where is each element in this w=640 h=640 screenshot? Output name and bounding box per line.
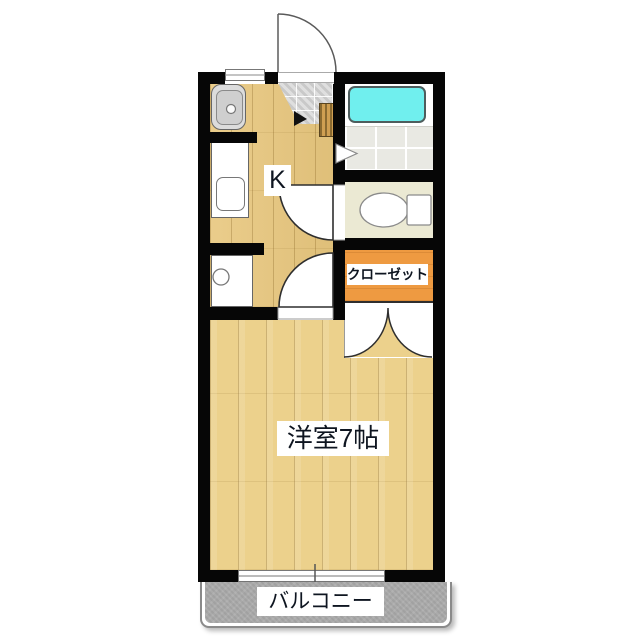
wall-stub-sink xyxy=(210,132,257,143)
stove-space xyxy=(216,177,245,211)
wall-left xyxy=(198,72,210,582)
entrance-door xyxy=(278,14,336,72)
floor-plan: K クローゼット 洋室7帖 バルコニー xyxy=(0,0,640,640)
counter-unit xyxy=(211,142,249,218)
wall-stub-washer xyxy=(210,243,264,255)
kitchen-sink xyxy=(211,84,246,130)
wall-kitchen-closet-lower xyxy=(333,240,345,320)
western-room-label: 洋室7帖 xyxy=(277,421,389,456)
wall-bottom-left xyxy=(198,570,238,582)
wall-top-right xyxy=(334,72,445,84)
wall-top-mid xyxy=(265,72,278,84)
wall-bottom-right xyxy=(385,570,445,582)
bathroom-tile-floor xyxy=(345,126,433,170)
toilet-room xyxy=(345,182,433,238)
balcony-label: バルコニー xyxy=(257,587,384,616)
balcony-window xyxy=(238,570,385,582)
wall-right xyxy=(433,72,445,582)
sink-basin xyxy=(216,90,243,125)
closet-label: クローゼット xyxy=(347,264,428,285)
wall-kitchen-room xyxy=(198,307,278,320)
kitchen-window xyxy=(225,69,265,81)
entrance-threshold xyxy=(278,72,334,83)
bathroom xyxy=(345,84,433,170)
washing-machine-space xyxy=(211,255,253,307)
entry-step xyxy=(319,103,334,137)
closet-doors-area xyxy=(344,303,433,358)
bathtub xyxy=(348,86,426,123)
wall-toilet-closet xyxy=(333,238,445,250)
kitchen-label: K xyxy=(264,165,291,196)
wall-bath-toilet xyxy=(333,170,445,182)
